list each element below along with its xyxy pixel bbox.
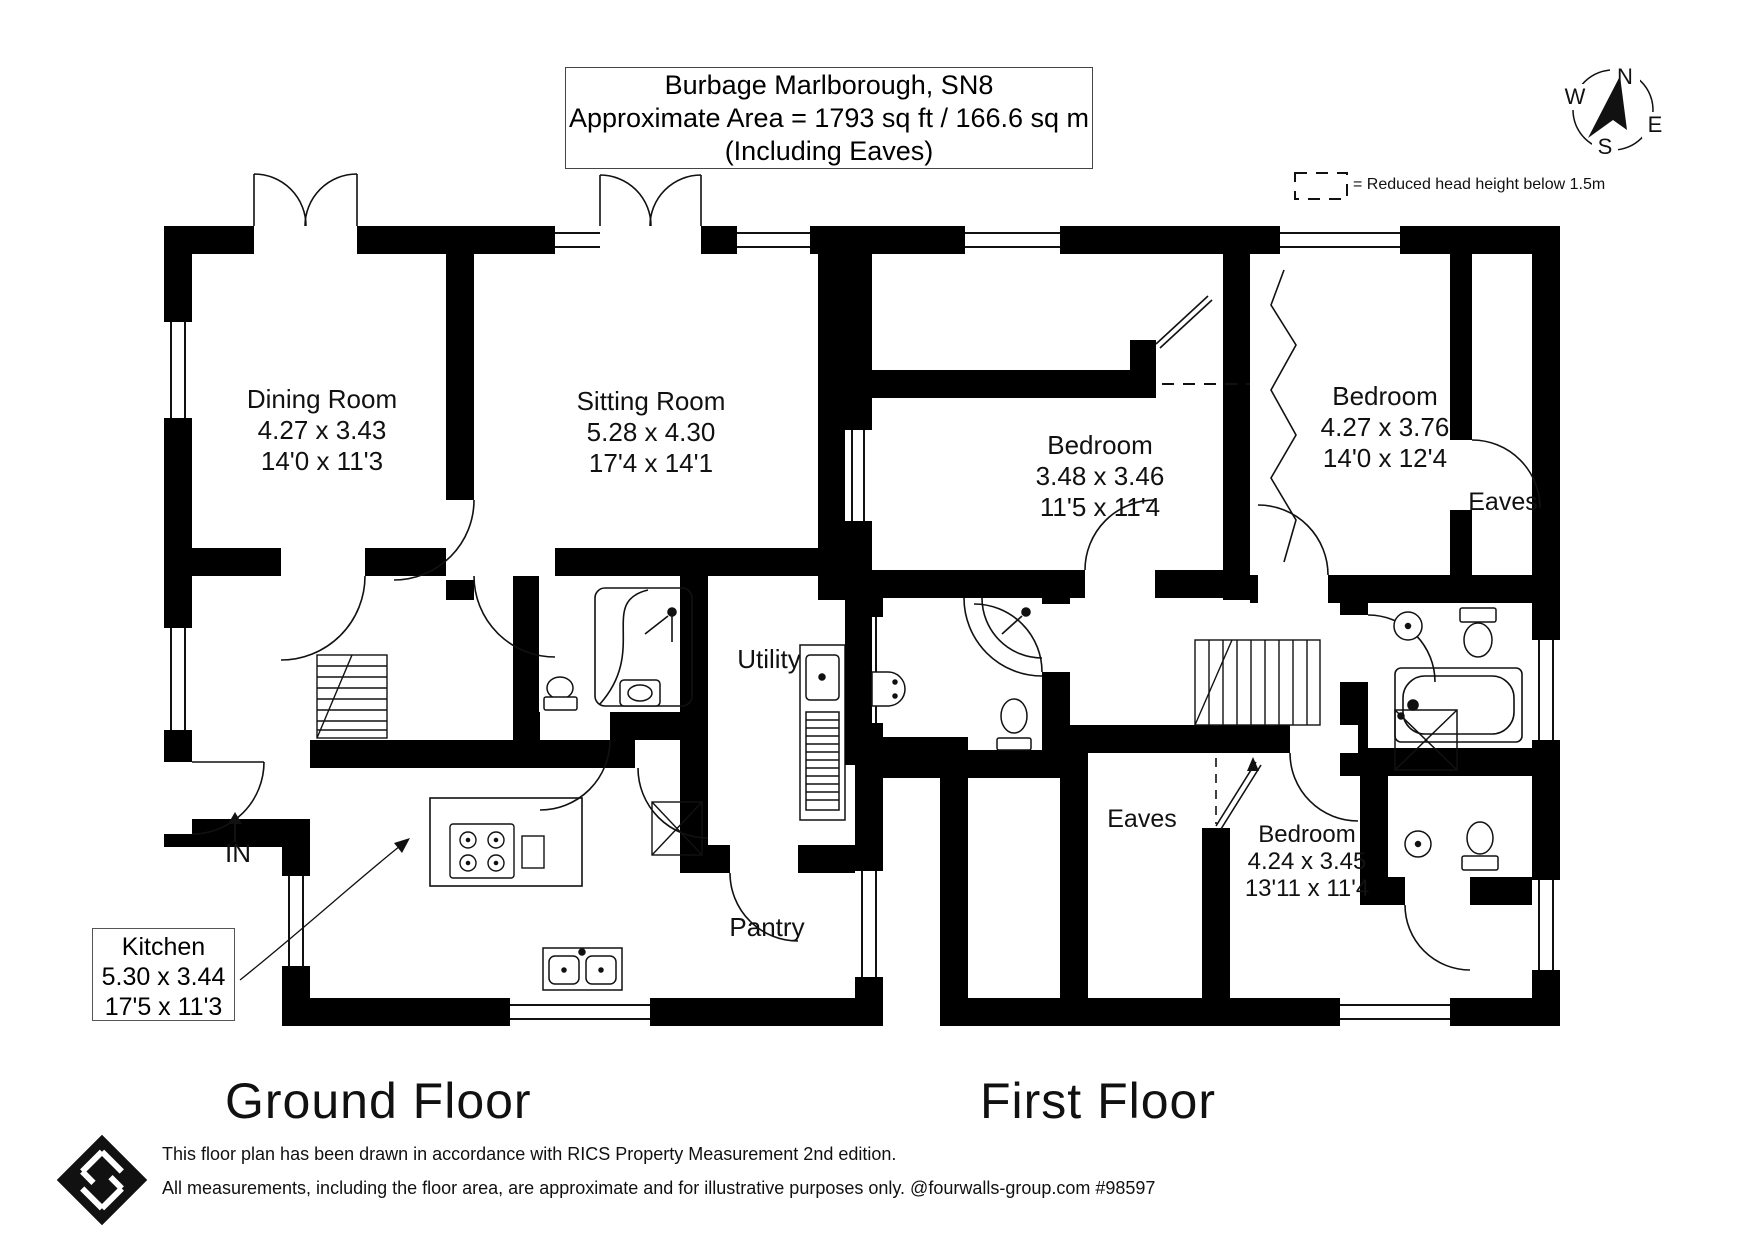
room-size-imperial: 14'0 x 12'4 [1265,443,1505,474]
compass-rose: N W E S [1562,62,1668,160]
fourwalls-logo [57,1135,148,1226]
toilet-icon [1460,608,1496,657]
title-address: Burbage Marlborough, SN8 [566,69,1092,102]
compass-south: S [1598,134,1613,159]
wall [845,226,1560,254]
room-size-metric: 5.28 x 4.30 [531,417,771,448]
toilet-icon [1462,822,1498,870]
basin-icon [1394,612,1422,640]
wall [940,998,1560,1026]
room-name: Dining Room [202,384,442,415]
title-box: Burbage Marlborough, SN8 Approximate Are… [565,67,1093,169]
wall [310,740,635,768]
entrance-in-label: IN [218,838,258,869]
compass-west: W [1565,84,1586,109]
compass-north: N [1617,64,1633,89]
room-size-imperial: 13'11 x 11'4 [1187,875,1427,902]
stairs [317,655,387,738]
room-name: Bedroom [1265,381,1505,412]
room-size-imperial: 11'5 x 11'4 [980,492,1220,523]
compass-east: E [1648,112,1663,137]
room-size-imperial: 17'4 x 14'1 [531,448,771,479]
toilet-icon [544,677,577,710]
dining-room-label: Dining Room 4.27 x 3.43 14'0 x 11'3 [202,384,442,477]
eaves-left-label: Eaves [1072,805,1212,834]
footer-rics-note: This floor plan has been drawn in accord… [162,1144,896,1165]
wall [164,226,192,838]
stair-direction-tick [1247,757,1259,771]
first-floor-title: First Floor [980,1072,1216,1130]
room-name: Bedroom [980,430,1220,461]
wall [1130,340,1156,398]
eaves-right-label: Eaves [1433,488,1573,517]
wall [1223,254,1250,600]
sitting-room-label: Sitting Room 5.28 x 4.30 17'4 x 14'1 [531,386,771,479]
wall [1060,753,1088,1026]
bedroom1-label: Bedroom 3.48 x 3.46 11'5 x 11'4 [980,430,1220,523]
room-size-metric: 4.24 x 3.45 [1187,848,1427,875]
first-floor-plan [845,226,1560,1026]
room-name: Kitchen [93,932,234,962]
bath-icon [1395,668,1522,742]
legend-swatch [1295,173,1347,199]
kitchen-label-box: Kitchen 5.30 x 3.44 17'5 x 11'3 [92,928,235,1021]
ground-floor-title: Ground Floor [225,1072,532,1130]
wall [872,750,1070,778]
bedroom2-label: Bedroom 4.27 x 3.76 14'0 x 12'4 [1265,381,1505,474]
title-note: (Including Eaves) [566,135,1092,168]
wall [872,370,1130,398]
room-size-metric: 3.48 x 3.46 [980,461,1220,492]
wall [872,570,1223,598]
hob-icon [450,824,544,878]
room-size-imperial: 14'0 x 11'3 [202,446,442,477]
kitchen-island [430,798,582,886]
title-area: Approximate Area = 1793 sq ft / 166.6 sq… [566,102,1092,135]
wall [818,226,846,600]
room-name: Bedroom [1187,821,1427,848]
kitchen-leader-line [240,838,410,980]
floor-plan-page: N W E S Burbage Marlborough, SN8 Approxi… [0,0,1755,1240]
pantry-label: Pantry [687,912,847,943]
wall [940,737,968,1026]
footer-disclaimer: All measurements, including the floor ar… [162,1178,1155,1199]
ground-floor-plan [164,174,883,1026]
legend-label: = Reduced head height below 1.5m [1353,176,1605,194]
utility-label: Utility [689,644,849,675]
room-size-imperial: 17'5 x 11'3 [93,992,234,1022]
bedroom3-label: Bedroom 4.24 x 3.45 13'11 x 11'4 [1187,821,1427,902]
room-size-metric: 4.27 x 3.43 [202,415,442,446]
room-size-metric: 5.30 x 3.44 [93,962,234,992]
room-size-metric: 4.27 x 3.76 [1265,412,1505,443]
room-name: Sitting Room [531,386,771,417]
sink-icon [543,948,622,990]
basin-icon [872,672,905,706]
basin-icon [620,680,660,706]
stairs [1195,640,1320,725]
toilet-icon [997,699,1031,750]
